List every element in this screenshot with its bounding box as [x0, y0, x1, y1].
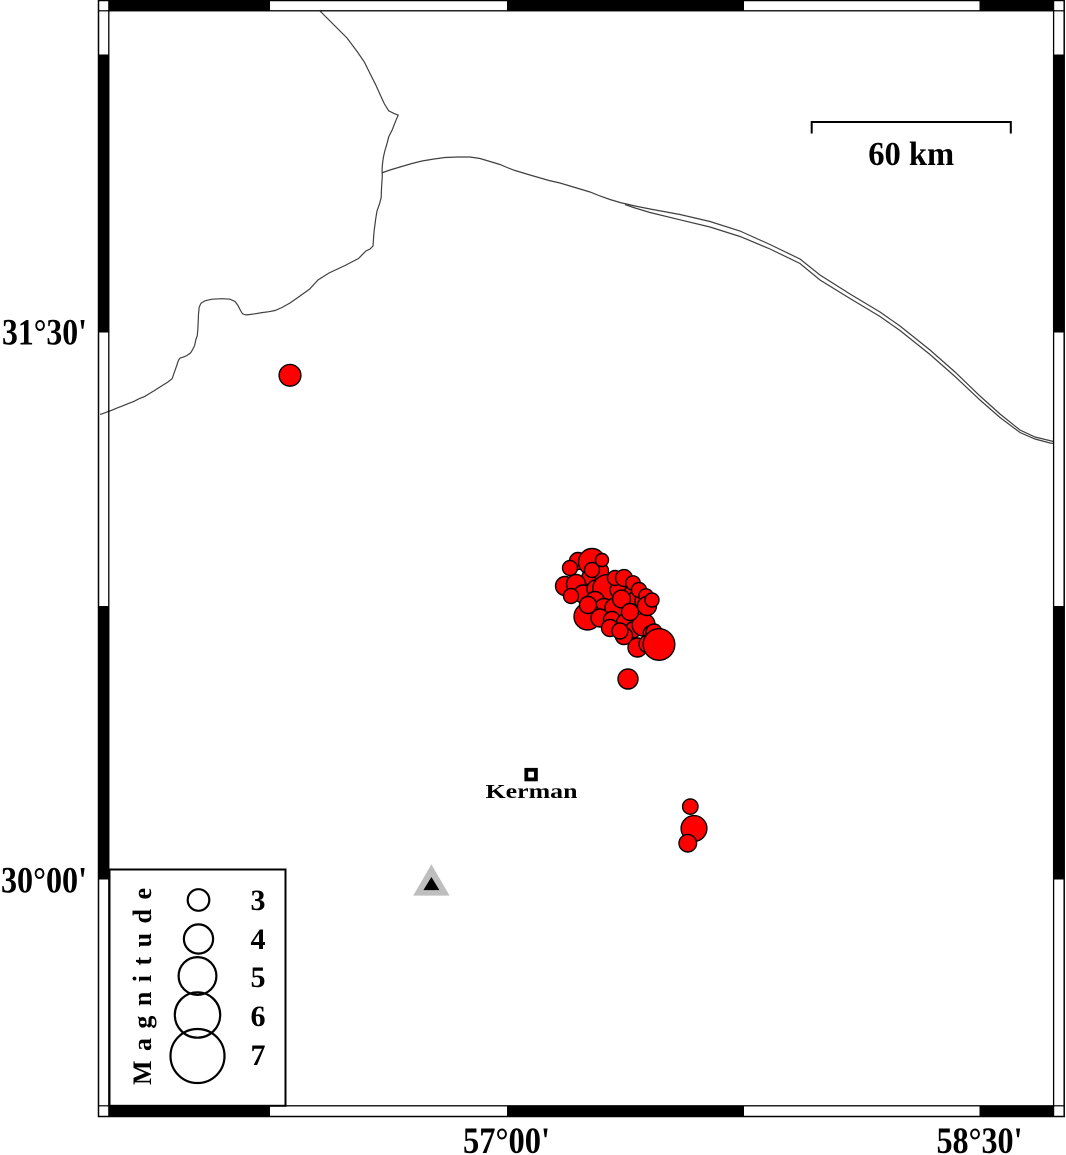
svg-text:31°30': 31°30' — [2, 313, 87, 354]
svg-text:30°00': 30°00' — [1, 861, 87, 902]
svg-text:4: 4 — [251, 923, 266, 956]
svg-text:Kerman: Kerman — [486, 781, 578, 803]
svg-text:7: 7 — [251, 1039, 266, 1072]
svg-text:58°30': 58°30' — [937, 1121, 1023, 1155]
svg-text:6: 6 — [251, 1000, 266, 1033]
svg-text:60 km: 60 km — [868, 136, 954, 173]
svg-text:5: 5 — [251, 961, 266, 994]
svg-text:57°00': 57°00' — [463, 1121, 550, 1155]
svg-text:3: 3 — [251, 884, 266, 917]
